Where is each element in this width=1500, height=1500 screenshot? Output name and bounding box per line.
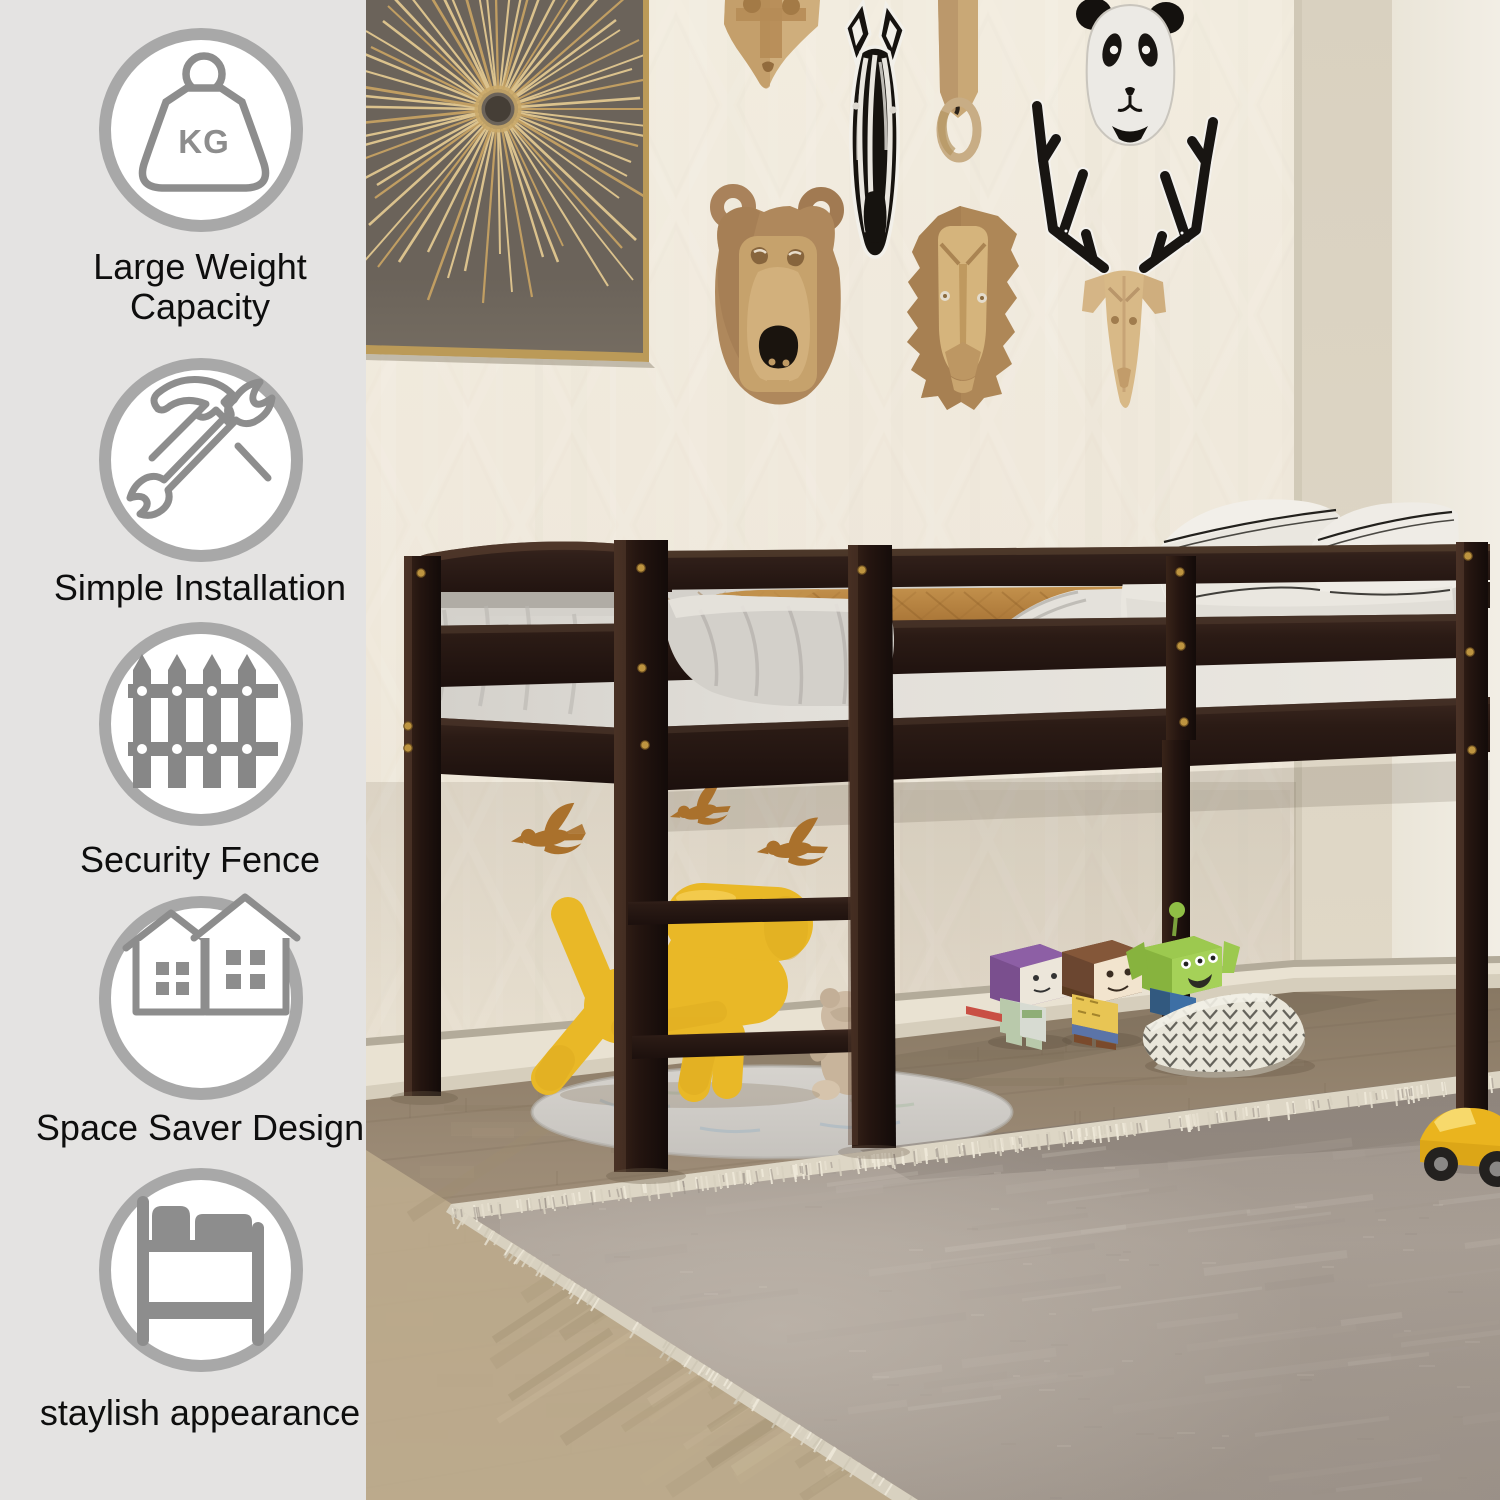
svg-text:Security Fence: Security Fence: [80, 839, 320, 880]
svg-text:Large Weight: Large Weight: [93, 246, 306, 287]
svg-text:Capacity: Capacity: [130, 286, 270, 327]
svg-text:Simple Installation: Simple Installation: [54, 567, 346, 608]
svg-text:Space Saver Design: Space Saver Design: [36, 1107, 364, 1148]
svg-text:KG: KG: [178, 123, 230, 160]
svg-text:staylish appearance: staylish appearance: [40, 1392, 360, 1433]
